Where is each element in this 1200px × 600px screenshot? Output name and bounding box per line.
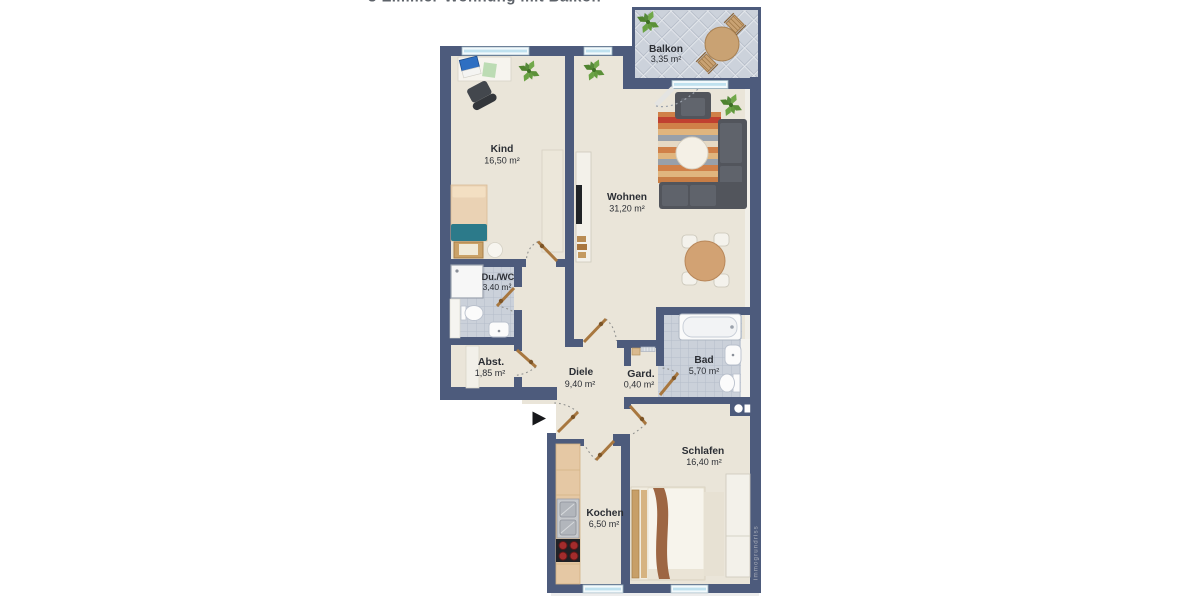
svg-text:Diele: Diele (569, 367, 594, 378)
svg-text:immogrundriss: immogrundriss (753, 525, 760, 580)
svg-text:3,40 m²: 3,40 m² (483, 282, 512, 292)
svg-text:Wohnen: Wohnen (607, 192, 647, 203)
svg-text:Gard.: Gard. (627, 368, 655, 380)
svg-text:16,40 m²: 16,40 m² (686, 457, 722, 467)
svg-text:9,40 m²: 9,40 m² (565, 379, 596, 389)
svg-text:Bad: Bad (694, 355, 713, 366)
svg-text:Kochen: Kochen (586, 508, 623, 519)
svg-text:Abst.: Abst. (478, 356, 504, 368)
svg-text:6,50 m²: 6,50 m² (589, 519, 620, 529)
svg-text:0,40 m²: 0,40 m² (624, 380, 655, 390)
svg-text:3,35 m²: 3,35 m² (651, 54, 682, 64)
svg-text:5,70 m²: 5,70 m² (689, 366, 720, 376)
svg-text:16,50 m²: 16,50 m² (484, 156, 520, 166)
svg-text:Du./WC: Du./WC (482, 272, 515, 282)
svg-text:3-Zimmer-Wohnung mit Balkon: 3-Zimmer-Wohnung mit Balkon (368, 0, 601, 6)
svg-text:31,20 m²: 31,20 m² (609, 204, 645, 214)
svg-text:1,85 m²: 1,85 m² (475, 368, 506, 378)
svg-text:Schlafen: Schlafen (682, 446, 724, 457)
svg-text:Kind: Kind (491, 144, 514, 155)
